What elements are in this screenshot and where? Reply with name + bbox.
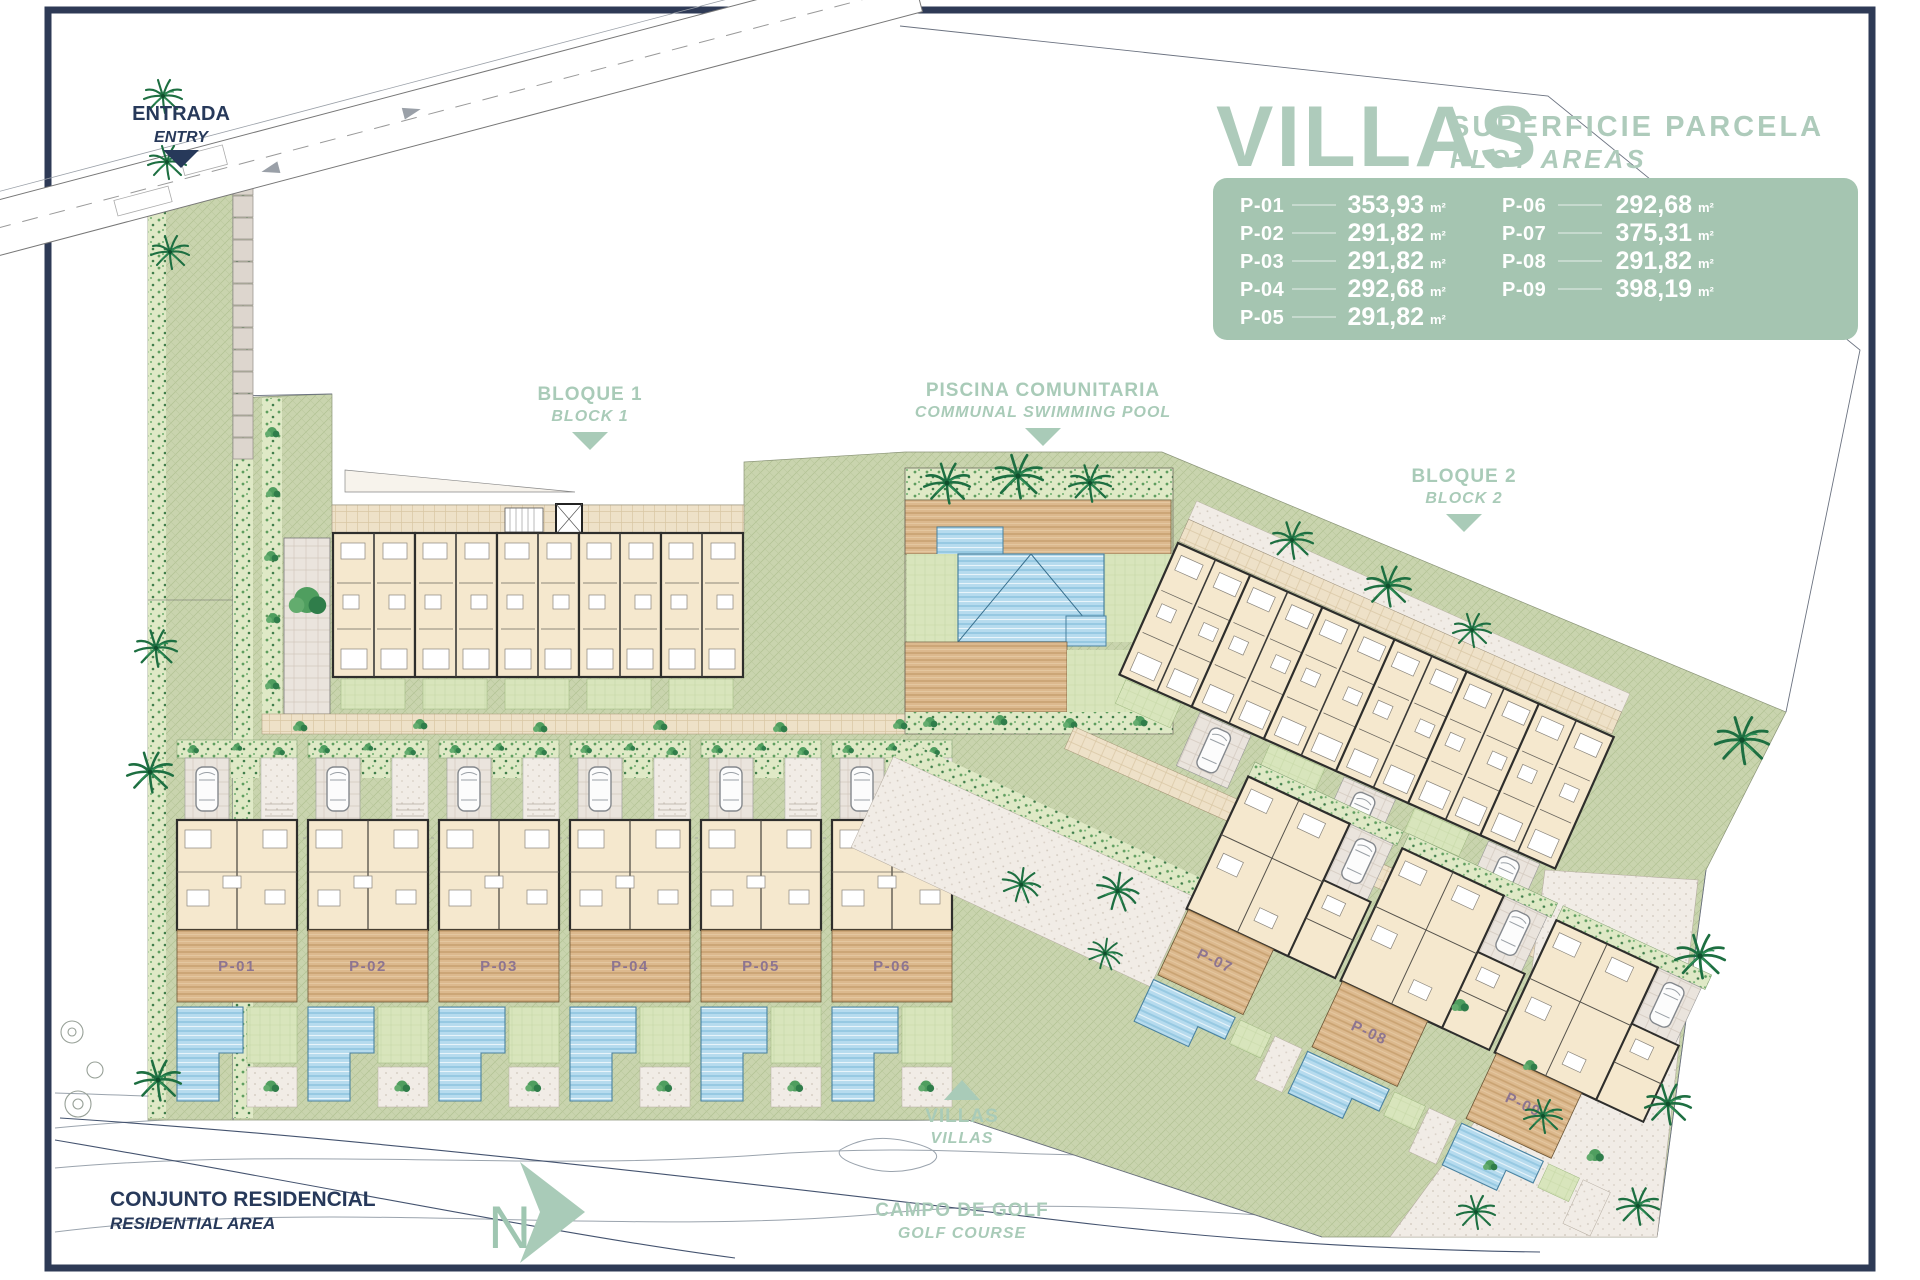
walkway-band (262, 714, 962, 734)
legend-subtitle-en: PLOT AREAS (1450, 144, 1647, 174)
legend-unit: m² (1698, 228, 1715, 243)
legend-plot-id: P-01 (1240, 195, 1284, 217)
site-plan-page: P-01 P-02 P-03 P-04 P-05 P-06 P-07 P-08 … (0, 0, 1920, 1280)
pool-label: PISCINA COMUNITARIA (926, 380, 1160, 401)
legend-unit: m² (1698, 200, 1715, 215)
legend-plot-id: P-07 (1502, 223, 1546, 245)
legend-plot-area: 291,82 (1348, 247, 1424, 275)
legend-plot-area: 291,82 (1348, 303, 1424, 331)
plot-label-p01: P-01 (218, 958, 256, 975)
plot-label-p02: P-02 (349, 958, 387, 975)
legend-unit: m² (1430, 200, 1447, 215)
plot-label-p05: P-05 (742, 958, 780, 975)
block1-label: BLOQUE 1 (537, 384, 642, 405)
plot-label-p04: P-04 (611, 958, 649, 975)
legend-plot-id: P-02 (1240, 223, 1284, 245)
legend-plot-area: 292,68 (1348, 275, 1425, 303)
legend-plot-id: P-05 (1240, 307, 1284, 329)
block2-label: BLOQUE 2 (1411, 466, 1516, 487)
block1-label-en: BLOCK 1 (551, 408, 628, 425)
legend-unit: m² (1430, 256, 1447, 271)
legend: VILLAS SUPERFICIE PARCELA PLOT AREAS P-0… (1213, 89, 1858, 340)
block1-building (332, 470, 744, 709)
legend-unit: m² (1698, 256, 1715, 271)
legend-unit: m² (1430, 284, 1447, 299)
legend-plot-area: 398,19 (1616, 275, 1692, 303)
legend-plot-id: P-09 (1502, 279, 1546, 301)
legend-plot-area: 353,93 (1348, 191, 1424, 219)
entry-left-planting (148, 164, 166, 1118)
legend-unit: m² (1430, 228, 1447, 243)
legend-plot-area: 291,82 (1616, 247, 1692, 275)
pool-label-en: COMMUNAL SWIMMING POOL (915, 404, 1171, 421)
plot-label-p06: P-06 (873, 958, 911, 975)
legend-plot-area: 375,31 (1616, 219, 1693, 247)
legend-plot-id: P-03 (1240, 251, 1284, 273)
residential-label: CONJUNTO RESIDENCIAL (110, 1188, 376, 1211)
villas-label-en: VILLAS (931, 1130, 994, 1147)
plot-label-p03: P-03 (480, 958, 518, 975)
block1-courtyard (284, 538, 330, 714)
legend-subtitle: SUPERFICIE PARCELA (1450, 111, 1824, 143)
legend-plot-id: P-08 (1502, 251, 1546, 273)
legend-unit: m² (1430, 312, 1447, 327)
legend-unit: m² (1698, 284, 1715, 299)
legend-plot-area: 291,82 (1348, 219, 1424, 247)
residential-label-en: RESIDENTIAL AREA (110, 1214, 275, 1233)
entrance-label-en: ENTRY (154, 129, 209, 146)
golf-label-en: GOLF COURSE (898, 1225, 1027, 1242)
legend-plot-area: 292,68 (1616, 191, 1693, 219)
villas-label: VILLAS (925, 1106, 999, 1127)
stairs (505, 508, 543, 532)
legend-plot-id: P-06 (1502, 195, 1546, 217)
golf-label: CAMPO DE GOLF (875, 1200, 1048, 1221)
legend-plot-id: P-04 (1240, 279, 1285, 301)
master-plan-drawing: P-01 P-02 P-03 P-04 P-05 P-06 P-07 P-08 … (0, 0, 1920, 1280)
block2-label-en: BLOCK 2 (1425, 490, 1502, 507)
entrance-label: ENTRADA (132, 103, 230, 125)
